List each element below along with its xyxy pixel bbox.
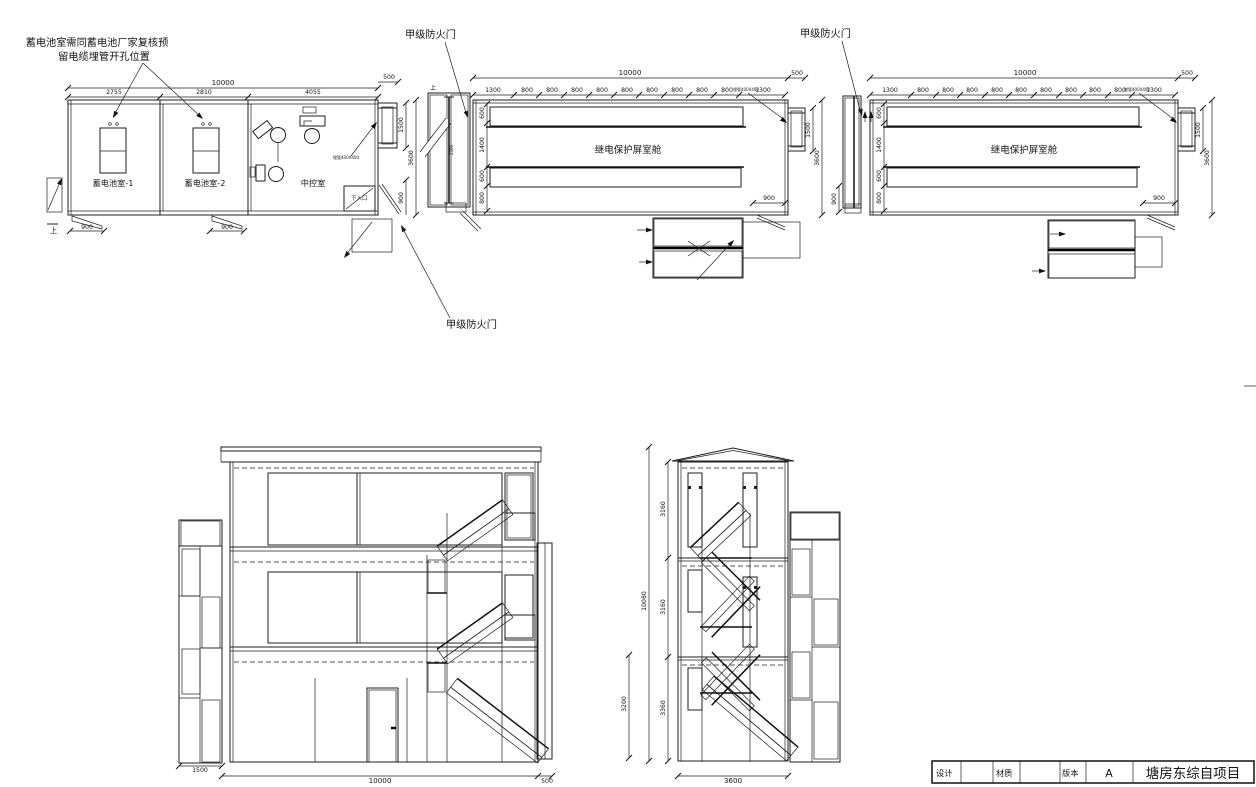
dim-seg2: 2810 (196, 89, 212, 96)
plan2-bottom-stair (637, 218, 800, 280)
plan1-bottom-right-stair (342, 219, 392, 259)
dim-p3-m8: 800 (1114, 87, 1126, 94)
dim-plan3-ext: 500 (1181, 70, 1193, 77)
down-entry-box: 下入口 (344, 186, 375, 211)
battery-note-line2: 留电缆埋管开孔位置 (58, 50, 150, 63)
front-right-stair (427, 473, 552, 763)
dim-p3-m5: 800 (1040, 87, 1052, 94)
fire-door-label-2: 甲级防火门 (800, 27, 851, 40)
title-block: 设计 材质 版本 A 塘房东综自项目 (932, 761, 1254, 783)
dim-p3-m1: 800 (942, 87, 954, 94)
dim-p3-m4: 800 (1015, 87, 1027, 94)
dim-front-1500: 1500 (192, 767, 208, 774)
dim-plan1-total: 10000 (212, 78, 235, 87)
control-room-workstations (250, 107, 325, 182)
front-left-ladder-tower (179, 520, 222, 763)
dim-p2-m4: 800 (621, 87, 633, 94)
fire-door-label-3: 甲级防火门 (446, 318, 497, 331)
stair-door-3f (505, 473, 533, 540)
dim-p2-endr: 1300 (755, 87, 771, 94)
dim-p3-m6: 800 (1065, 87, 1077, 94)
dim-side-10080: 10080 (641, 591, 648, 611)
dim-side-3160a: 3160 (660, 501, 667, 517)
pipe-note-1: 埋管400X400 (333, 154, 359, 160)
battery-note-line1: 蓄电池室需同蓄电池厂家复核预 (26, 36, 169, 49)
relay-cabin-plan-1: 上 2500 继电保护屏室舱 埋管400X400 (420, 68, 825, 280)
plan1-bottom-stair-1: 900 (67, 216, 107, 234)
plan3-dimensions: 10000 500 1300 800 800 800 800 800 800 8… (867, 68, 1215, 218)
side-elevation: 3160 3160 3360 10080 3200 3600 (621, 444, 840, 785)
room-label-relay-2: 继电保护屏室舱 (991, 144, 1058, 156)
plan2-left-stair: 上 2500 (420, 84, 481, 231)
dim-plan1-900: 900 (398, 192, 405, 204)
dim-side-3200: 3200 (621, 696, 628, 712)
dim-p3-side900: 900 (831, 193, 838, 205)
dim-side-3160b: 3160 (660, 599, 667, 615)
dim-p2-m7: 800 (696, 87, 708, 94)
front-elevation: 1500 10000 500 (176, 447, 555, 785)
dim-p2-m3: 800 (596, 87, 608, 94)
title-material-label: 材质 (996, 768, 1012, 778)
cable-ladder-bay (378, 103, 397, 148)
door-leaf-plan1 (379, 185, 399, 214)
room-label-battery1: 蓄电池室-1 (93, 178, 134, 188)
dim-plan1-ext: 500 (383, 74, 395, 81)
battery-rack-2 (193, 123, 219, 173)
side-stair-zigzag (690, 502, 798, 762)
room-label-battery2: 蓄电池室-2 (185, 178, 226, 188)
plan1-bottom-stair-2: 900 (207, 216, 247, 234)
annotation-notes: 蓄电池室需同蓄电池厂家复核预 留电缆埋管开孔位置 甲级防火门 甲级防火门 甲级防… (26, 27, 1256, 386)
cad-drawing-sheet: { "annotations": { "battery_note_1": "蓄电… (0, 0, 1256, 787)
dim-p2-1500: 1500 (805, 122, 812, 138)
dim-p2-l3: 800 (479, 192, 486, 204)
dim-p2-3600: 3600 (814, 150, 821, 166)
side-right-ladder-tower (790, 512, 840, 762)
dim-seg3: 4055 (305, 89, 321, 96)
dim-plan2-total: 10000 (619, 68, 642, 77)
title-project-name: 塘房东综自项目 (1146, 766, 1241, 782)
dim-stair2: 900 (221, 224, 233, 231)
dim-p2-m2: 800 (571, 87, 583, 94)
dim-plan1-1500: 1500 (398, 117, 405, 133)
title-version-label: 版本 (1062, 768, 1078, 778)
dim-p2-m6: 800 (671, 87, 683, 94)
dim-p3-endr: 1300 (1146, 87, 1162, 94)
room-label-relay-1: 继电保护屏室舱 (595, 144, 662, 156)
dim-p3-l2: 600 (876, 170, 883, 182)
down-entry-label: 下入口 (351, 195, 368, 202)
dim-p2-m0: 800 (521, 87, 533, 94)
front-window-band-mid (268, 572, 502, 643)
dim-p3-m0: 800 (917, 87, 929, 94)
dim-p3-3600: 3600 (1204, 150, 1211, 166)
stair-door-2f (505, 575, 533, 638)
dim-p2-900: 900 (763, 195, 775, 202)
dim-p3-l1: 1400 (876, 137, 883, 153)
title-design-label: 设计 (936, 768, 952, 778)
plan2-dimensions: 10000 500 1300 800 800 800 800 800 800 8… (470, 68, 825, 218)
dim-seg1: 2755 (106, 89, 122, 96)
dim-p2-l2: 600 (479, 170, 486, 182)
plan3-bottom-stair (1032, 220, 1162, 278)
title-version-value: A (1105, 767, 1113, 780)
dim-plan3-total: 10000 (1014, 68, 1037, 77)
dim-p3-m2: 800 (966, 87, 978, 94)
battery-control-room-plan: 埋管400X400 下入口 上 900 900 蓄电池室-1 蓄电池室-2 中控… (47, 74, 419, 259)
front-door (367, 688, 398, 762)
dim-p3-l3: 800 (876, 192, 883, 204)
room-label-control: 中控室 (301, 178, 326, 188)
plan3-left-ladder: 900 (831, 96, 873, 215)
dim-p3-900: 900 (1153, 195, 1165, 202)
dim-side-3600: 3600 (724, 776, 743, 785)
drawing-canvas: 蓄电池室需同蓄电池厂家复核预 留电缆埋管开孔位置 甲级防火门 甲级防火门 甲级防… (0, 0, 1256, 787)
plan2-cable-ladder-bay (788, 108, 805, 151)
up-label-2: 上 (430, 84, 436, 92)
battery-rack-1 (100, 123, 126, 173)
dim-p2-m5: 800 (646, 87, 658, 94)
dim-stair1: 900 (81, 224, 93, 231)
dim-p2-m1: 800 (546, 87, 558, 94)
dim-front-10000: 10000 (369, 776, 392, 785)
up-label-1: 上 (50, 226, 57, 235)
dim-p2-endl: 1300 (485, 87, 501, 94)
dim-p3-endl: 1300 (882, 87, 898, 94)
dim-p3-1500: 1500 (1195, 122, 1202, 138)
stair-width-note: 2500 (449, 144, 454, 155)
front-window-band-top (268, 473, 502, 545)
relay-cabin-plan-2: 900 继电保护屏室舱 埋管400X400 10000 (831, 68, 1215, 278)
dim-side-3360: 3360 (660, 700, 667, 716)
dim-plan1-3600: 3600 (408, 150, 415, 166)
plan1-left-ladder: 上 (47, 177, 64, 235)
dim-p3-l0: 600 (876, 107, 883, 119)
plan3-cable-ladder-bay (1178, 108, 1195, 151)
dim-p2-l1: 1400 (479, 137, 486, 153)
dim-plan2-ext: 500 (791, 70, 803, 77)
dim-p2-l0: 600 (479, 107, 486, 119)
dim-p2-m8: 800 (721, 87, 733, 94)
dim-p3-m7: 800 (1089, 87, 1101, 94)
dim-front-500: 500 (541, 778, 553, 785)
dim-p3-m3: 800 (991, 87, 1003, 94)
front-elevation-dimensions: 1500 10000 500 (176, 763, 555, 785)
fire-door-label-1: 甲级防火门 (405, 28, 456, 41)
